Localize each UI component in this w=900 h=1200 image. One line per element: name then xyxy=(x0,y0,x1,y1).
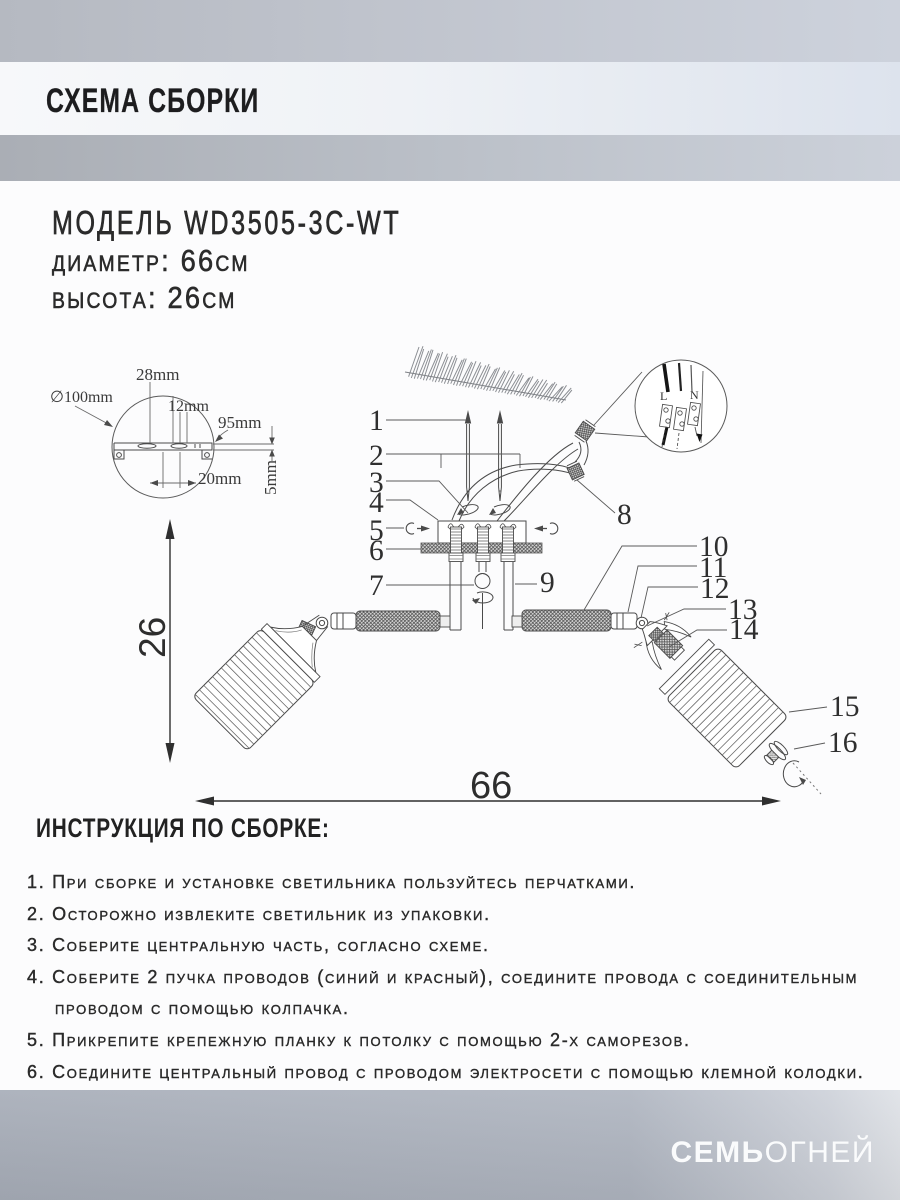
svg-text:20mm: 20mm xyxy=(198,469,241,488)
svg-text:5mm: 5mm xyxy=(261,460,280,495)
svg-text:66: 66 xyxy=(470,765,512,807)
svg-text:15: 15 xyxy=(830,691,860,723)
svg-text:8: 8 xyxy=(617,499,632,531)
svg-text:95mm: 95mm xyxy=(218,413,261,432)
svg-text:12mm: 12mm xyxy=(168,398,209,415)
svg-text:9: 9 xyxy=(540,567,555,599)
svg-text:∅100mm: ∅100mm xyxy=(50,389,113,406)
svg-text:14: 14 xyxy=(729,614,759,646)
svg-text:26: 26 xyxy=(132,617,173,658)
svg-text:7: 7 xyxy=(369,570,384,602)
svg-text:16: 16 xyxy=(828,727,858,759)
svg-text:28mm: 28mm xyxy=(136,365,179,384)
svg-text:N: N xyxy=(690,388,699,402)
svg-text:6: 6 xyxy=(369,535,384,567)
svg-text:1: 1 xyxy=(369,405,384,437)
svg-text:L: L xyxy=(660,389,667,403)
svg-text:12: 12 xyxy=(700,573,730,605)
